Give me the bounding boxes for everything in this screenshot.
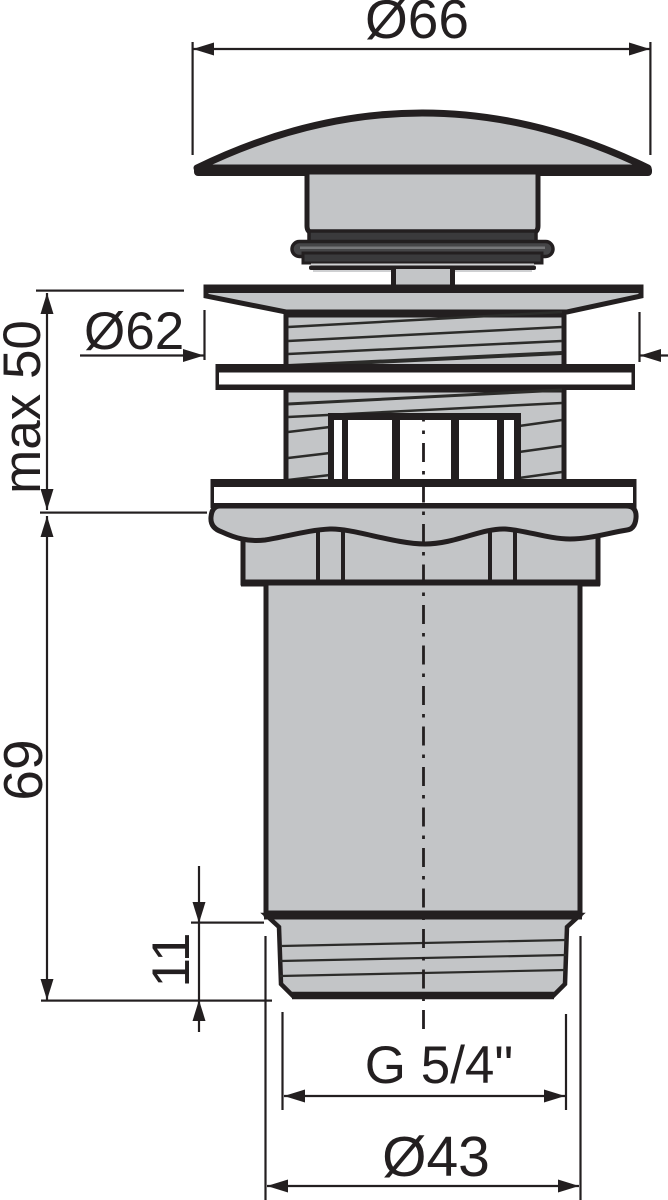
svg-text:Ø62: Ø62 [84,302,184,361]
svg-text:11: 11 [142,932,201,987]
svg-text:Ø66: Ø66 [365,0,469,50]
svg-text:G 5/4": G 5/4" [365,1036,513,1095]
svg-text:max 50: max 50 [0,320,52,494]
svg-text:Ø43: Ø43 [382,1125,490,1189]
svg-text:69: 69 [0,739,54,800]
